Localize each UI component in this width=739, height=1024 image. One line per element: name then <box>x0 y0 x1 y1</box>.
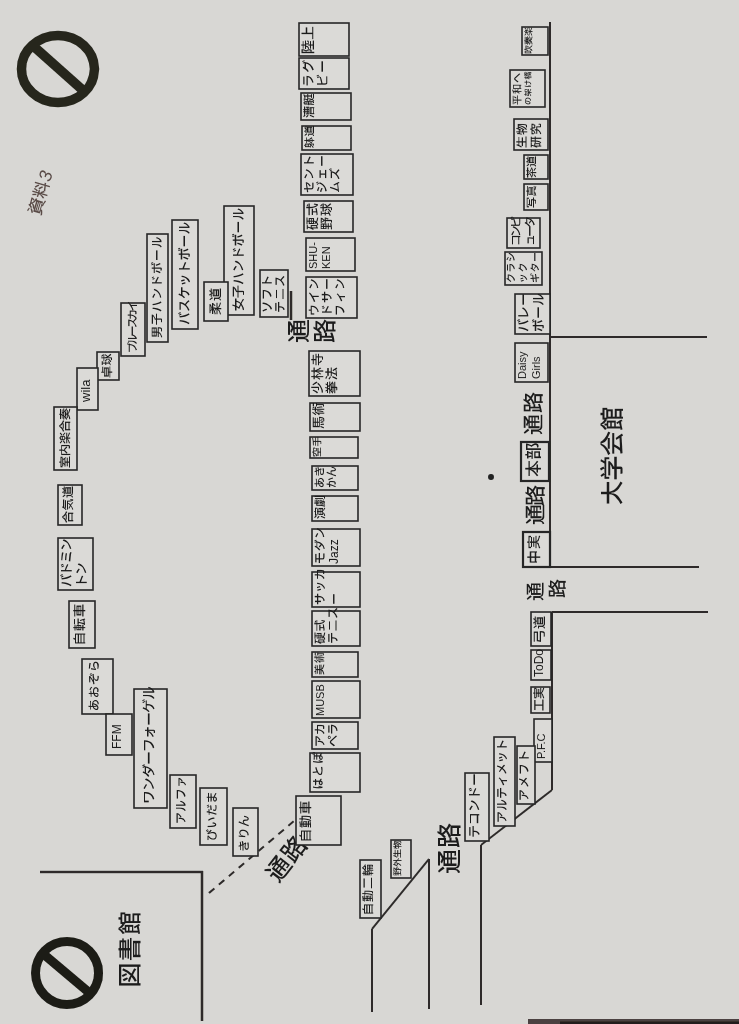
svg-text:wila: wila <box>78 379 93 403</box>
svg-text:MUSB: MUSB <box>314 684 326 716</box>
svg-text:Daisy: Daisy <box>516 351 528 379</box>
svg-text:ToDo: ToDo <box>532 649 546 677</box>
svg-text:P.F.C: P.F.C <box>535 733 547 759</box>
svg-text:Girls: Girls <box>530 356 542 379</box>
svg-text:FFM: FFM <box>110 724 124 749</box>
svg-text:Jazz: Jazz <box>327 539 341 564</box>
svg-text:KEN: KEN <box>320 246 332 269</box>
svg-text:SHU-: SHU- <box>307 242 319 269</box>
